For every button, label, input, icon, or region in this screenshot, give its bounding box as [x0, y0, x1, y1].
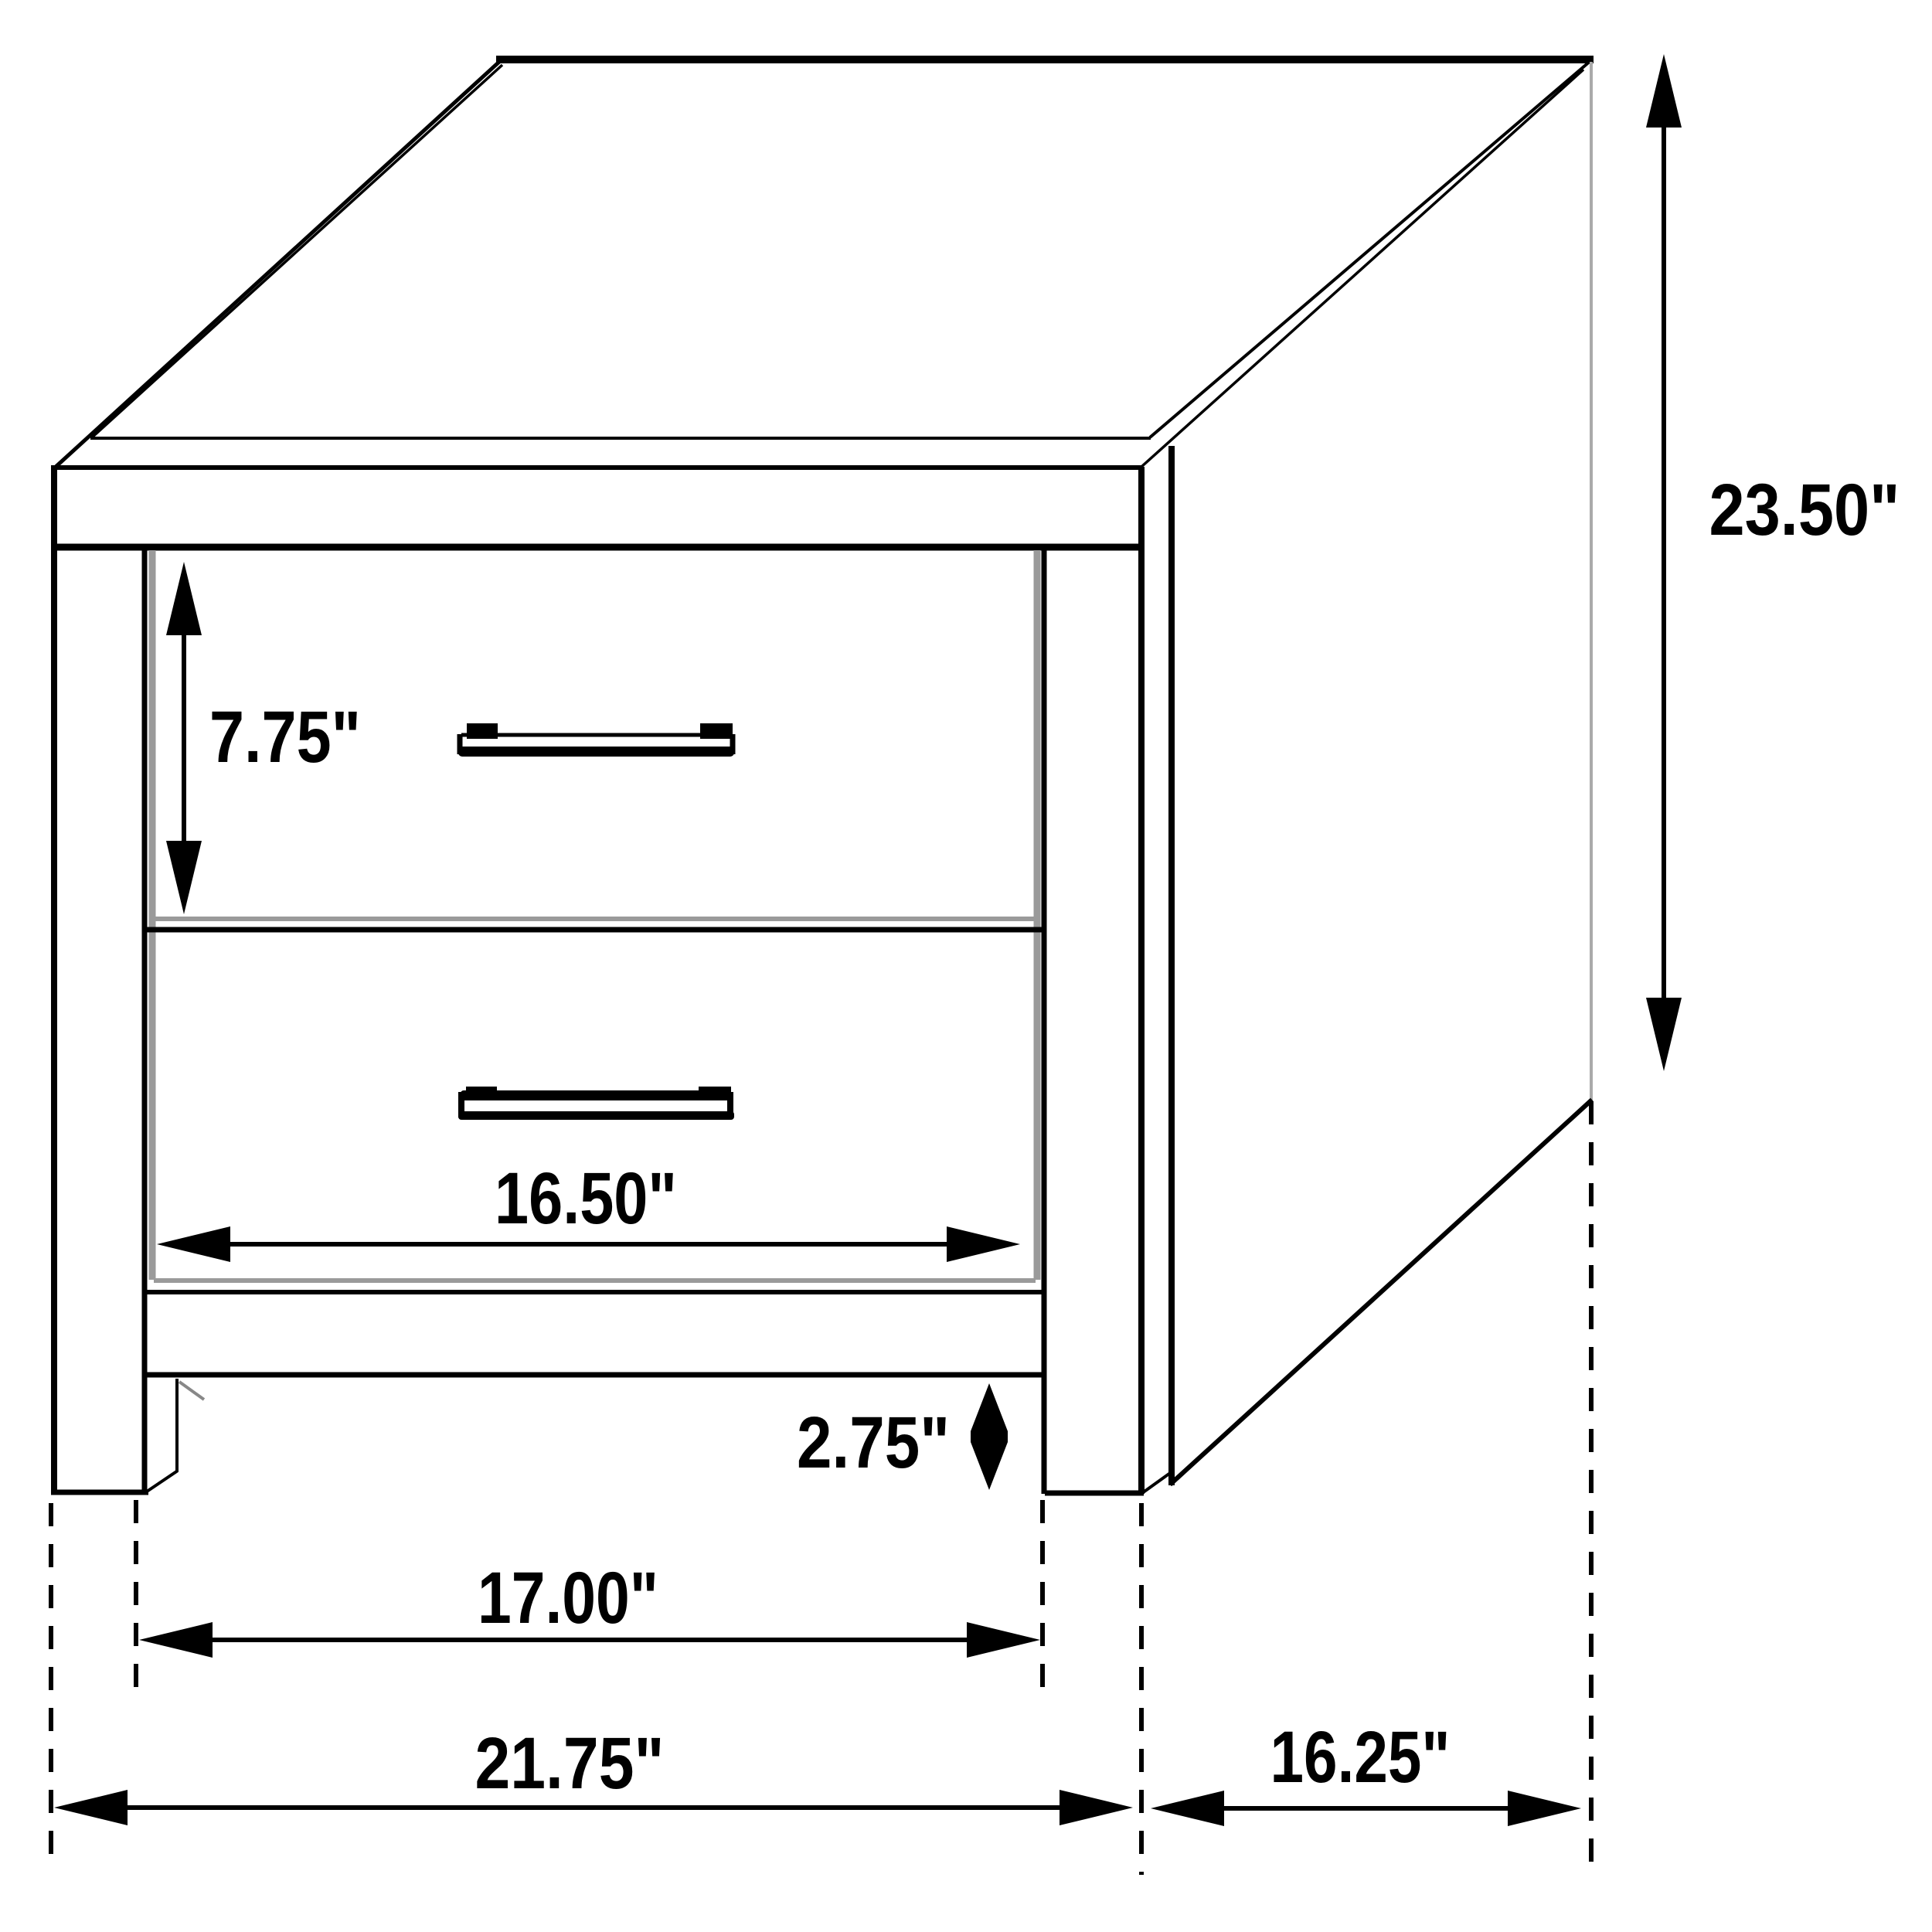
- svg-text:16.25": 16.25": [1270, 1716, 1451, 1798]
- svg-text:16.50": 16.50": [495, 1158, 677, 1240]
- svg-text:23.50": 23.50": [1709, 469, 1900, 551]
- svg-text:2.75": 2.75": [797, 1402, 950, 1484]
- svg-text:7.75": 7.75": [209, 696, 361, 778]
- svg-text:17.00": 17.00": [478, 1557, 658, 1639]
- svg-text:21.75": 21.75": [475, 1723, 665, 1804]
